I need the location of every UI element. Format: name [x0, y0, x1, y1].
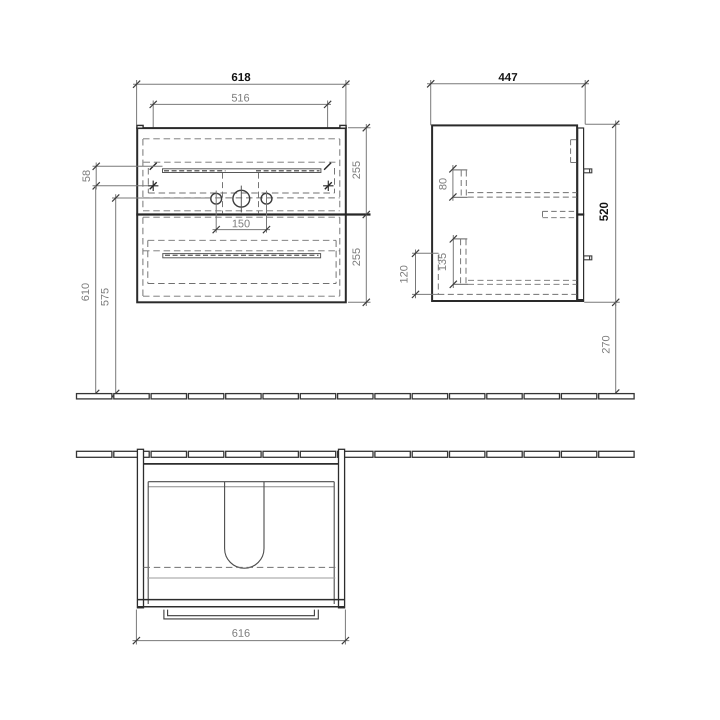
svg-text:618: 618: [231, 72, 251, 84]
svg-text:150: 150: [232, 218, 250, 230]
svg-text:80: 80: [437, 178, 449, 190]
svg-text:516: 516: [231, 92, 249, 104]
svg-text:135: 135: [437, 253, 449, 271]
svg-text:447: 447: [498, 72, 517, 84]
svg-text:616: 616: [232, 628, 250, 640]
svg-text:270: 270: [600, 335, 612, 353]
svg-text:610: 610: [80, 283, 92, 301]
svg-text:520: 520: [599, 202, 611, 221]
svg-text:575: 575: [99, 288, 111, 306]
svg-text:58: 58: [81, 170, 93, 182]
svg-text:120: 120: [399, 265, 411, 283]
svg-text:255: 255: [351, 161, 363, 179]
svg-text:255: 255: [351, 248, 363, 266]
